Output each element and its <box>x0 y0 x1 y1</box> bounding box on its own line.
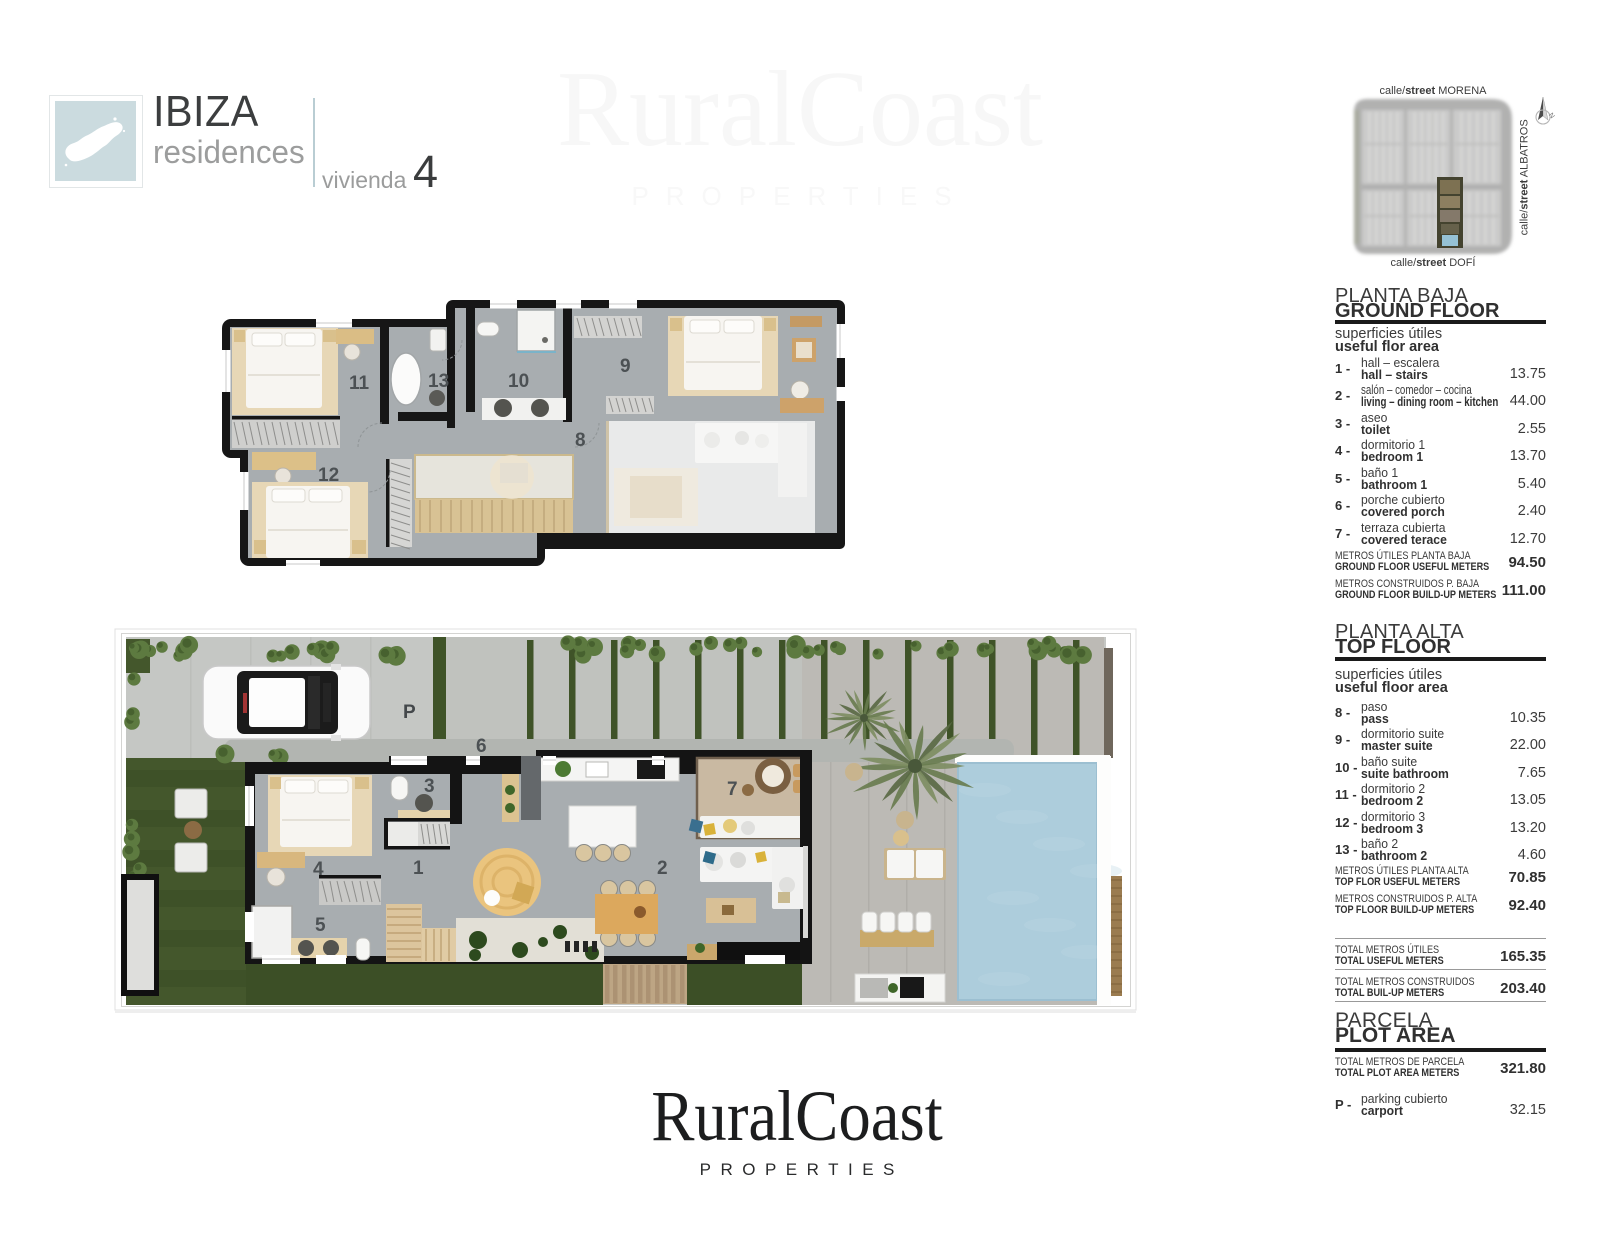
svg-text:2: 2 <box>657 858 668 879</box>
svg-text:6: 6 <box>476 736 487 757</box>
svg-text:P: P <box>403 702 416 723</box>
svg-text:1: 1 <box>413 858 424 879</box>
svg-text:4: 4 <box>313 859 324 880</box>
svg-text:5: 5 <box>315 915 326 936</box>
svg-text:7: 7 <box>727 779 738 800</box>
svg-text:3: 3 <box>424 776 435 797</box>
